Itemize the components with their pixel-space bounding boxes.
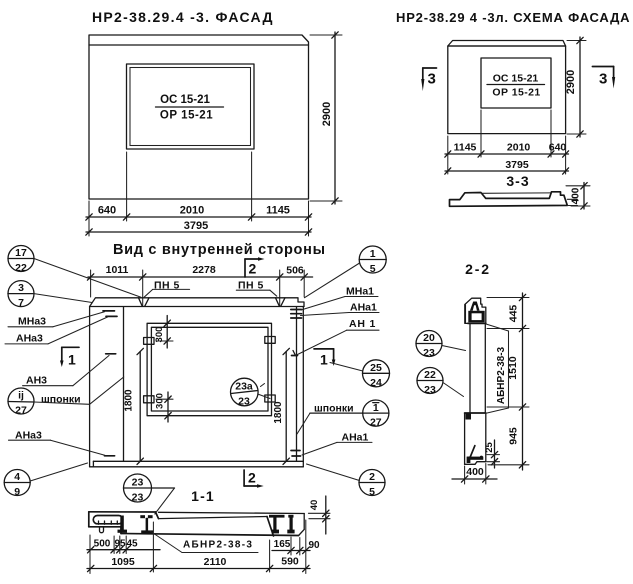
svg-text:2900: 2900 [321, 102, 333, 126]
svg-text:2010: 2010 [507, 142, 531, 154]
svg-text:23: 23 [238, 396, 250, 408]
svg-text:НР2-38.29.4 -3. ФАСАД: НР2-38.29.4 -3. ФАСАД [92, 9, 274, 25]
svg-text:500: 500 [94, 539, 111, 550]
svg-text:ОР 15-21: ОР 15-21 [492, 87, 540, 99]
svg-text:300: 300 [154, 327, 165, 343]
svg-text:945: 945 [508, 427, 520, 445]
svg-text:40: 40 [309, 500, 320, 511]
svg-text:95: 95 [114, 539, 126, 550]
svg-text:3-3: 3-3 [506, 173, 529, 189]
svg-text:2900: 2900 [565, 70, 577, 94]
svg-text:22: 22 [424, 369, 436, 381]
svg-text:300: 300 [155, 393, 166, 409]
svg-text:Вид с внутренней стороны: Вид с внутренней стороны [113, 242, 326, 258]
svg-text:590: 590 [281, 556, 299, 568]
svg-text:45: 45 [126, 539, 138, 550]
svg-text:3795: 3795 [184, 220, 208, 232]
svg-text:5: 5 [369, 486, 375, 498]
svg-text:400: 400 [571, 187, 582, 204]
svg-text:1: 1 [370, 248, 376, 260]
svg-text:ОС 15-21: ОС 15-21 [493, 73, 539, 85]
svg-text:2-2: 2-2 [465, 261, 491, 277]
svg-text:17: 17 [15, 247, 27, 259]
svg-text:9: 9 [14, 486, 20, 498]
svg-text:2278: 2278 [192, 264, 216, 276]
svg-text:АНа1: АНа1 [350, 302, 377, 314]
svg-text:МНа1: МНа1 [346, 286, 374, 298]
svg-text:3: 3 [428, 71, 436, 88]
svg-text:165: 165 [274, 539, 291, 550]
svg-text:1800: 1800 [124, 389, 135, 412]
svg-text:20: 20 [423, 332, 435, 344]
svg-text:АБНР2-38-3: АБНР2-38-3 [496, 346, 507, 404]
svg-text:23: 23 [423, 347, 435, 359]
svg-text:3795: 3795 [505, 159, 529, 171]
svg-text:25: 25 [484, 442, 495, 453]
svg-text:ij: ij [18, 390, 24, 402]
svg-text:1145: 1145 [454, 142, 477, 154]
svg-text:2: 2 [249, 261, 257, 277]
svg-text:2: 2 [369, 471, 375, 483]
svg-text:1095: 1095 [111, 556, 135, 568]
svg-text:640: 640 [549, 142, 567, 154]
svg-text:3: 3 [599, 71, 607, 88]
svg-text:2: 2 [248, 470, 256, 486]
svg-text:23: 23 [132, 492, 144, 504]
svg-text:27: 27 [370, 417, 382, 429]
svg-text:400: 400 [466, 466, 484, 478]
svg-text:24: 24 [370, 377, 382, 389]
svg-text:2010: 2010 [180, 205, 204, 217]
svg-text:АН 1: АН 1 [349, 318, 376, 330]
svg-text:7: 7 [18, 297, 24, 309]
svg-text:445: 445 [508, 305, 520, 323]
svg-text:НР2-38.29 4 -3л. СХЕМА ФАСАДА: НР2-38.29 4 -3л. СХЕМА ФАСАДА [396, 10, 630, 25]
svg-text:1145: 1145 [266, 205, 290, 217]
svg-text:ОР 15-21: ОР 15-21 [160, 110, 213, 122]
svg-text:4: 4 [14, 471, 20, 483]
svg-text:АНа3: АНа3 [16, 333, 43, 345]
svg-text:МНа3: МНа3 [18, 316, 46, 328]
svg-text:5: 5 [370, 263, 376, 275]
svg-text:АН3: АН3 [26, 375, 47, 387]
svg-text:АНа1: АНа1 [342, 432, 369, 444]
svg-text:3: 3 [18, 282, 24, 294]
svg-text:23: 23 [424, 384, 436, 396]
svg-text:1: 1 [320, 352, 328, 368]
svg-text:АБНР2-38-3: АБНР2-38-3 [183, 540, 253, 551]
svg-text:27: 27 [15, 405, 27, 417]
svg-text:640: 640 [98, 205, 116, 217]
svg-text:1-1: 1-1 [191, 488, 215, 504]
svg-text:ОС 15-21: ОС 15-21 [160, 94, 210, 106]
svg-text:1800: 1800 [273, 401, 284, 424]
svg-text:2110: 2110 [204, 556, 227, 568]
svg-text:506: 506 [286, 265, 304, 277]
svg-text:90: 90 [308, 540, 320, 551]
svg-text:22: 22 [15, 262, 27, 274]
svg-text:25: 25 [370, 362, 382, 374]
svg-text:1: 1 [373, 402, 379, 414]
svg-text:1011: 1011 [106, 264, 129, 276]
svg-text:23а: 23а [235, 381, 253, 393]
svg-text:1: 1 [68, 352, 76, 368]
svg-text:23: 23 [132, 477, 144, 489]
